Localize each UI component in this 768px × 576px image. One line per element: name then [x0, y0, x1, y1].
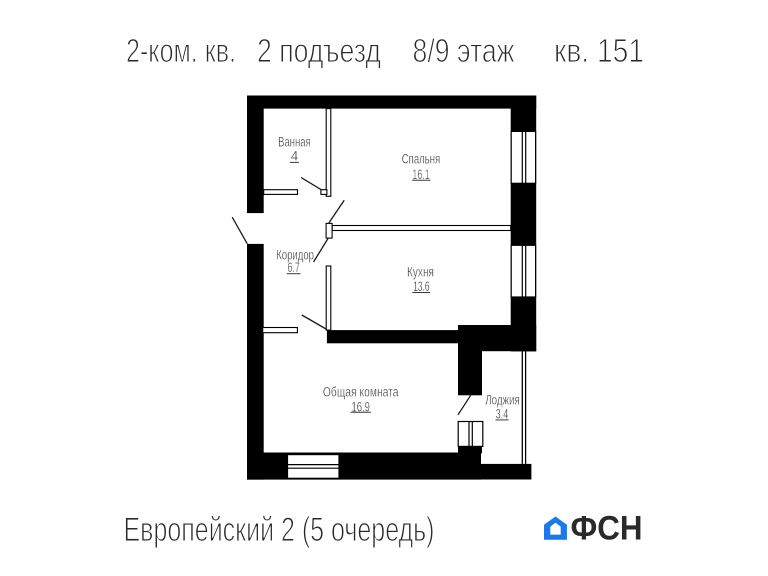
svg-text:8/9 этаж: 8/9 этаж: [413, 33, 515, 70]
svg-text:2 подъезд: 2 подъезд: [257, 33, 381, 70]
svg-text:Общая комната: Общая комната: [323, 383, 399, 399]
svg-text:3.4: 3.4: [496, 407, 509, 422]
svg-text:Спальня: Спальня: [402, 152, 441, 167]
svg-text:ФСН: ФСН: [571, 510, 643, 548]
svg-text:6.7: 6.7: [287, 260, 299, 275]
svg-text:Лоджия: Лоджия: [485, 393, 520, 408]
svg-text:Кухня: Кухня: [407, 265, 434, 280]
svg-text:13.6: 13.6: [413, 279, 429, 294]
svg-text:Европейский 2 (5 очередь): Европейский 2 (5 очередь): [124, 511, 435, 549]
svg-text:2-ком. кв.: 2-ком. кв.: [126, 33, 236, 70]
svg-text:Ванная: Ванная: [278, 135, 311, 150]
svg-text:16.1: 16.1: [412, 167, 429, 182]
svg-text:4: 4: [291, 149, 299, 164]
svg-text:кв. 151: кв. 151: [554, 33, 644, 70]
